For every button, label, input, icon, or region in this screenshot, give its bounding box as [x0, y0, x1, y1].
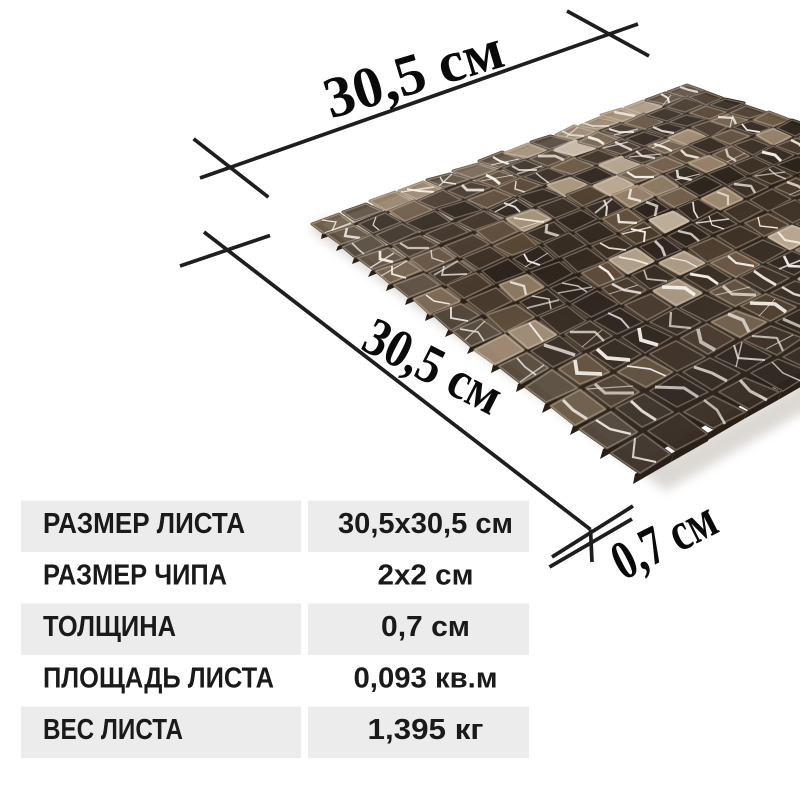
- svg-text:1,395 кг: 1,395 кг: [368, 714, 484, 746]
- svg-text:РАЗМЕР ЧИПА: РАЗМЕР ЧИПА: [43, 560, 227, 592]
- svg-text:0,7 см: 0,7 см: [601, 487, 727, 591]
- svg-text:2x2 см: 2x2 см: [378, 560, 474, 592]
- svg-text:ТОЛЩИНА: ТОЛЩИНА: [43, 611, 176, 643]
- svg-text:0,093 кв.м: 0,093 кв.м: [354, 663, 498, 695]
- svg-text:ВЕС ЛИСТА: ВЕС ЛИСТА: [43, 714, 183, 746]
- svg-text:РАЗМЕР ЛИСТА: РАЗМЕР ЛИСТА: [43, 508, 245, 540]
- svg-text:30,5 см: 30,5 см: [316, 16, 511, 131]
- svg-text:ПЛОЩАДЬ ЛИСТА: ПЛОЩАДЬ ЛИСТА: [43, 663, 274, 695]
- svg-text:30,5x30,5 см: 30,5x30,5 см: [338, 508, 513, 540]
- svg-text:0,7 см: 0,7 см: [381, 611, 470, 643]
